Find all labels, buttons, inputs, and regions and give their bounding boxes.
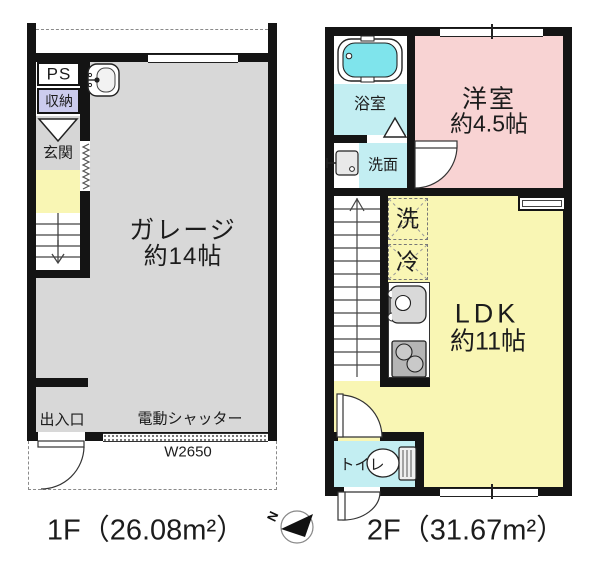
garage-name-label: ガレージ — [129, 219, 237, 244]
bathroom-label: 浴室 — [354, 97, 386, 113]
garage-size-label: 約14帖 — [144, 245, 223, 269]
refrigerator-label: 冷 — [396, 251, 420, 274]
wall — [380, 432, 424, 441]
window-2f-bottom — [440, 488, 538, 497]
entrance-landing — [36, 170, 80, 213]
wall — [325, 432, 338, 441]
outline-dash — [28, 489, 277, 490]
wall — [563, 27, 572, 496]
outline-dash — [36, 29, 268, 30]
wall — [415, 441, 424, 487]
electric-shutter-symbol — [103, 433, 268, 442]
wall — [380, 196, 388, 387]
accordion-door-gap — [80, 141, 90, 191]
ldk-name-label: LDK — [455, 301, 520, 328]
bathtub-icon — [338, 36, 402, 82]
counter-symbol-inner — [522, 200, 562, 207]
storage-label: 収納 — [45, 94, 73, 108]
wall — [268, 23, 277, 441]
compass-north-icon: N — [264, 509, 313, 543]
wall — [325, 27, 334, 496]
counter-symbol — [518, 196, 566, 211]
window-1f-top — [148, 54, 238, 63]
doorway-label: 出入口 — [39, 413, 84, 428]
western-room-name-label: 洋室 — [462, 88, 516, 113]
stairs-2f — [334, 196, 380, 381]
washroom-label: 洗面 — [368, 158, 398, 173]
western-room-size-label: 約4.5帖 — [450, 113, 528, 136]
window-mullion — [491, 24, 493, 39]
door-gap-2f-bottom — [344, 487, 380, 496]
window-mullion — [491, 484, 493, 499]
washer-label: 洗 — [396, 208, 420, 231]
wall — [27, 378, 88, 387]
outline-dash — [28, 441, 29, 490]
wall — [36, 270, 90, 278]
wall — [407, 27, 415, 190]
floor1-title: 1F（26.08m²） — [47, 517, 245, 546]
stairs-1f — [36, 213, 80, 270]
wall — [325, 188, 572, 196]
floor2-title: 2F（31.67m²） — [367, 517, 565, 546]
outline-dash — [276, 441, 277, 490]
floor-plan-canvas: N — [0, 0, 600, 576]
wall — [380, 378, 430, 387]
entrance-label: 玄関 — [43, 146, 73, 161]
compass-north-label: N — [264, 509, 282, 524]
pipe-space-label: PS — [47, 66, 72, 83]
shutter-width-label: W2650 — [164, 445, 212, 460]
electric-shutter-label: 電動シャッター — [137, 412, 242, 427]
wall — [334, 135, 367, 143]
garage-room-extension — [36, 278, 90, 432]
ldk-size-label: 約11帖 — [450, 330, 526, 355]
toilet-label: トイレ — [339, 458, 384, 473]
kitchen-counter — [388, 282, 430, 378]
entrance-area — [36, 116, 80, 170]
door-swing-icon — [38, 441, 84, 489]
door-gap-1f — [38, 432, 85, 441]
